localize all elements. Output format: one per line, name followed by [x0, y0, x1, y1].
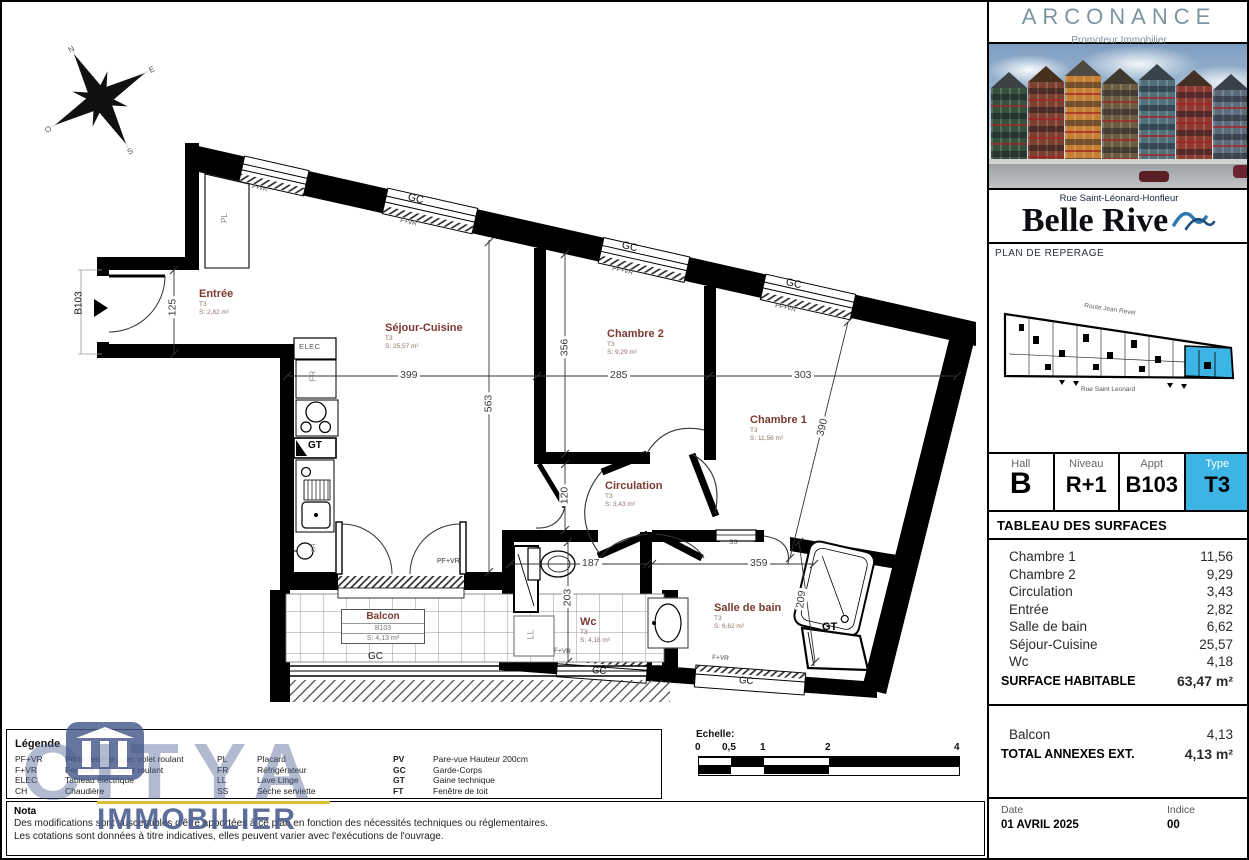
surface-row: Séjour-Cuisine25,57 — [989, 636, 1249, 654]
legend-abbr: PV — [393, 754, 433, 765]
dim-120: 120 — [559, 485, 570, 507]
room-label-chambre1: Chambre 1 T3 S: 11,56 m² — [750, 414, 807, 442]
immobilier-watermark: IMMOBILIER — [97, 805, 297, 835]
legend-abbr: GC — [393, 765, 433, 776]
surfaces-table: Chambre 111,56 Chambre 29,29 Circulation… — [987, 540, 1249, 704]
wave-icon — [1172, 207, 1216, 233]
pfvr-label-balcony: PF+VR — [437, 558, 460, 565]
fridge-label: FR — [309, 371, 317, 382]
render-house — [1065, 60, 1101, 166]
entry-door — [78, 270, 165, 354]
scale-tick: 0,5 — [722, 742, 736, 753]
surface-row: Chambre 29,29 — [989, 566, 1249, 584]
scale-tick: 0 — [695, 742, 701, 753]
render-car — [1233, 165, 1249, 178]
brand-name: ARCONANCE — [989, 4, 1249, 30]
elec-label: ELEC — [299, 343, 321, 351]
unit-niveau-value: R+1 — [1055, 470, 1119, 500]
plan-reperage-block: PLAN DE REPERAGE — [987, 244, 1249, 454]
dim-399: 399 — [398, 370, 420, 381]
surface-row: Wc4,18 — [989, 653, 1249, 671]
gc-label-wc-window: GC — [592, 666, 607, 677]
render-house — [991, 72, 1027, 166]
legend-label: Garde-Corps — [433, 765, 603, 776]
compass-o: O — [43, 124, 53, 135]
unit-type-cell: Type T3 — [1186, 454, 1249, 510]
surfaces-header: TABLEAU DES SURFACES — [987, 512, 1249, 540]
room-label-circulation: Circulation T3 S: 3,43 m² — [605, 480, 662, 508]
room-label-sejour: Séjour-Cuisine T3 S: 25,57 m² — [385, 322, 463, 350]
surface-row: Salle de bain6,62 — [989, 618, 1249, 636]
room-label-balcon: Balcon B103 S: 4,13 m² — [341, 609, 425, 644]
building-render-image — [987, 44, 1249, 190]
unit-appt-cell: Appt B103 — [1120, 454, 1186, 510]
compass-s: S — [126, 146, 135, 156]
room-label-wc: Wc T3 S: 4,18 m² — [580, 616, 610, 644]
unit-hall-value: B — [989, 470, 1053, 498]
gt-label-wc: GT — [513, 533, 528, 544]
date-label: Date — [1001, 804, 1023, 816]
scale-bar: Echelle: 0 0,5 1 2 4 — [696, 729, 734, 740]
render-house — [1176, 70, 1212, 166]
ll-label: LL — [527, 629, 536, 639]
unit-type-value: T3 — [1186, 470, 1249, 500]
annex-row: Balcon4,13 — [989, 726, 1249, 744]
title-block-meta: Date 01 AVRIL 2025 Indice 00 — [987, 797, 1249, 858]
surface-total-row: SURFACE HABITABLE63,47 m² — [989, 673, 1249, 691]
compass-rose: N E S O — [40, 38, 160, 160]
scale-title: Echelle: — [696, 729, 734, 740]
gc-label-sdb-window: GC — [739, 676, 754, 687]
map-street-bottom: Rue Saint Leonard — [1081, 386, 1135, 393]
annex-total-row: TOTAL ANNEXES EXT.4,13 m² — [989, 746, 1249, 764]
ss-label: SS — [729, 540, 738, 547]
project-title-block: Rue Saint-Léonard-Honfleur Belle Rive — [987, 190, 1249, 244]
unit-appt-label: Appt — [1120, 458, 1184, 470]
render-car — [1139, 171, 1169, 182]
indice-label: Indice — [1167, 804, 1195, 816]
unit-type-label: Type — [1186, 458, 1249, 470]
project-name: Belle Rive — [1022, 204, 1168, 238]
room-label-sdb: Salle de bain T3 S: 6,62 m² — [714, 602, 781, 630]
citya-watermark: CITYA — [22, 732, 325, 812]
surface-row: Circulation3,43 — [989, 583, 1249, 601]
entry-ref-label: B103 — [75, 291, 85, 314]
render-house — [1213, 74, 1249, 166]
gt-label-kitchen: GT — [308, 441, 322, 451]
scale-tick: 1 — [760, 742, 766, 753]
unit-appt-value: B103 — [1120, 470, 1184, 500]
legend-abbr: GT — [393, 775, 433, 786]
surface-row: Entrée2,82 — [989, 601, 1249, 619]
unit-niveau-label: Niveau — [1055, 458, 1119, 470]
annex-table: Balcon4,13 TOTAL ANNEXES EXT.4,13 m² — [987, 704, 1249, 797]
dim-356: 356 — [559, 337, 570, 359]
render-house — [1102, 68, 1138, 166]
unit-niveau-cell: Niveau R+1 — [1055, 454, 1121, 510]
dim-203: 203 — [562, 587, 573, 609]
dim-563: 563 — [483, 393, 494, 415]
pl-label: PL — [221, 213, 229, 223]
compass-e: E — [147, 64, 156, 74]
legend-label: Fenêtre de toit — [433, 786, 603, 797]
dim-187: 187 — [580, 558, 602, 569]
room-label-chambre2: Chambre 2 T3 S: 9,29 m² — [607, 328, 664, 356]
gc-label-balcony: GC — [368, 652, 383, 662]
surface-row: Chambre 111,56 — [989, 548, 1249, 566]
legend-label: Pare-vue Hauteur 200cm — [433, 754, 603, 765]
ch-label: CH — [311, 544, 317, 553]
legend-label: Gaine technique — [433, 775, 603, 786]
unit-hall-cell: Hall B — [989, 454, 1055, 510]
scale-tick: 4 — [954, 742, 960, 753]
date-value: 01 AVRIL 2025 — [1001, 819, 1079, 831]
brand-block: ARCONANCE Promoteur Immobilier — [987, 2, 1249, 44]
reperage-title: PLAN DE REPERAGE — [995, 248, 1249, 259]
surfaces-title: TABLEAU DES SURFACES — [997, 518, 1249, 533]
fvr-label-wc: F+VR — [554, 648, 571, 656]
floor-plan-sheet: N E S O Entrée T3 S: 2,82 m² Séjour-Cuis… — [0, 0, 1249, 860]
legend-abbr: FT — [393, 786, 433, 797]
dim-285: 285 — [608, 370, 630, 381]
room-label-entree: Entrée T3 S: 2,82 m² — [199, 288, 233, 316]
scale-tick: 2 — [825, 742, 831, 753]
dim-359: 359 — [748, 558, 770, 569]
render-house — [1139, 64, 1175, 166]
compass-n: N — [66, 44, 76, 55]
gt-label-sdb: GT — [822, 622, 837, 633]
dim-125: 125 — [167, 297, 178, 319]
indice-value: 00 — [1167, 819, 1180, 831]
fvr-label-sdb: F+VR — [712, 655, 729, 663]
render-house — [1028, 66, 1064, 166]
unit-table: Hall B Niveau R+1 Appt B103 Type T3 — [987, 454, 1249, 512]
dim-303: 303 — [792, 370, 814, 381]
